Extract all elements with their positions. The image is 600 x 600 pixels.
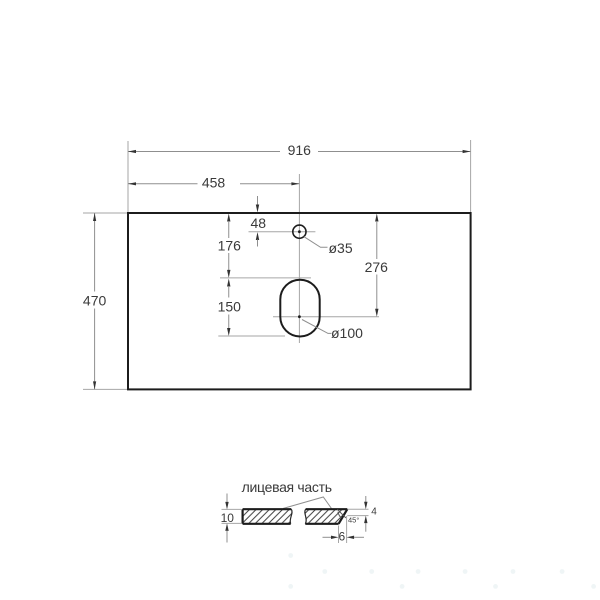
svg-text:лицевая часть: лицевая часть — [242, 479, 332, 495]
svg-text:458: 458 — [202, 175, 226, 191]
svg-text:6: 6 — [339, 530, 346, 544]
svg-text:150: 150 — [218, 298, 242, 314]
svg-text:48: 48 — [251, 215, 267, 231]
svg-text:176: 176 — [218, 238, 242, 254]
svg-text:916: 916 — [288, 142, 312, 158]
svg-text:470: 470 — [83, 292, 107, 308]
svg-text:10: 10 — [221, 511, 235, 525]
svg-text:ø100: ø100 — [331, 325, 363, 341]
svg-text:ø35: ø35 — [329, 240, 353, 256]
svg-text:4: 4 — [371, 507, 377, 518]
svg-text:276: 276 — [365, 259, 389, 275]
svg-text:45°: 45° — [348, 515, 359, 524]
